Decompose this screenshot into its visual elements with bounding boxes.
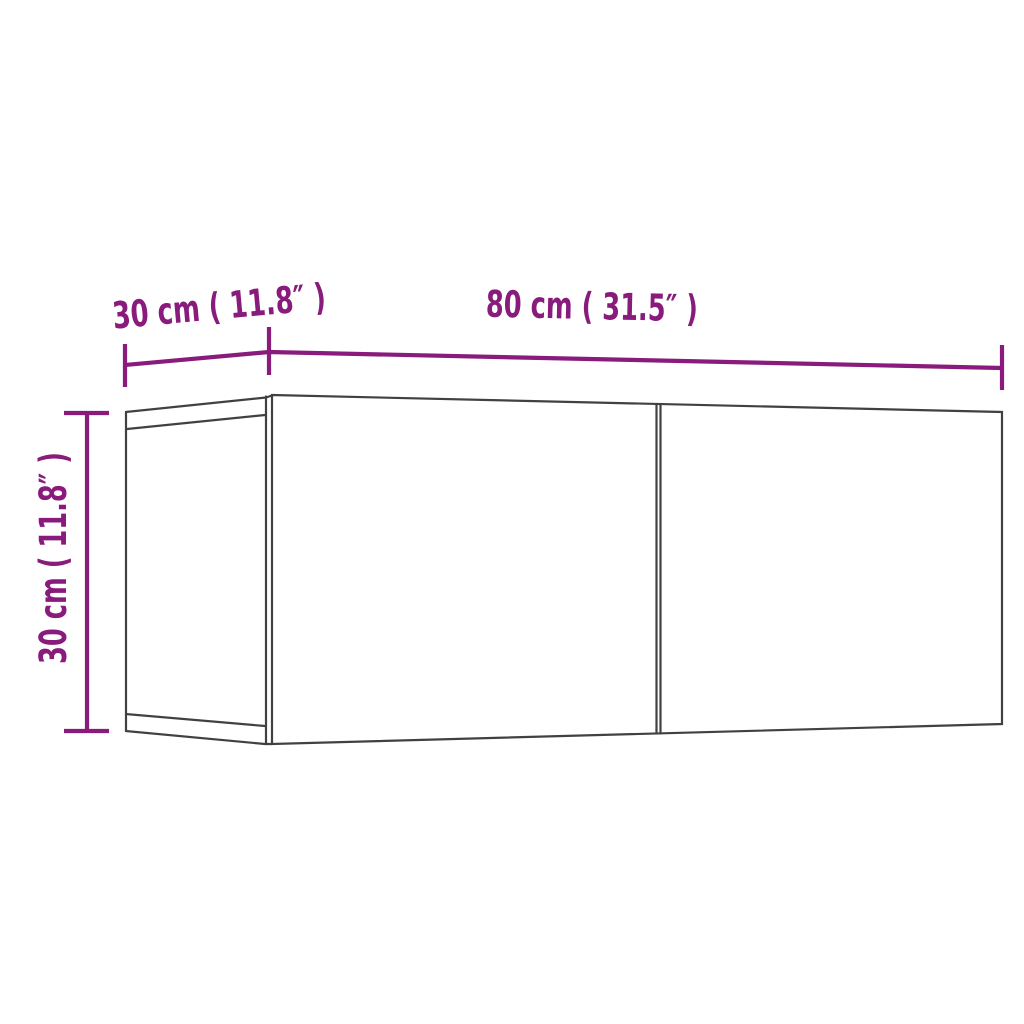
depth-dimension-label: 30 cm ( 11.8″ ) <box>111 275 328 337</box>
height-dimension-label: 30 cm ( 11.8″ ) <box>32 452 75 664</box>
cabinet-side-top-rail-lower-line <box>127 415 265 429</box>
cabinet-drawing <box>126 395 1002 744</box>
product-dimension-diagram: 30 cm ( 11.8″ ) 80 cm ( 31.5″ ) 30 cm ( … <box>0 0 1024 1024</box>
cabinet-side-bottom-rail-upper-line <box>126 714 265 726</box>
dimension-lines <box>64 327 1002 731</box>
dimension-labels: 30 cm ( 11.8″ ) 80 cm ( 31.5″ ) 30 cm ( … <box>32 275 698 664</box>
dimension-diagram-canvas: 30 cm ( 11.8″ ) 80 cm ( 31.5″ ) 30 cm ( … <box>0 0 1024 1024</box>
width-dimension-label: 80 cm ( 31.5″ ) <box>485 283 698 331</box>
cabinet-side-top-rail-upper-line <box>126 398 266 413</box>
top-dimension-line <box>125 352 1002 368</box>
cabinet-front-face <box>272 395 1002 744</box>
cabinet-side-bottom-rail-lower-line <box>126 731 265 744</box>
